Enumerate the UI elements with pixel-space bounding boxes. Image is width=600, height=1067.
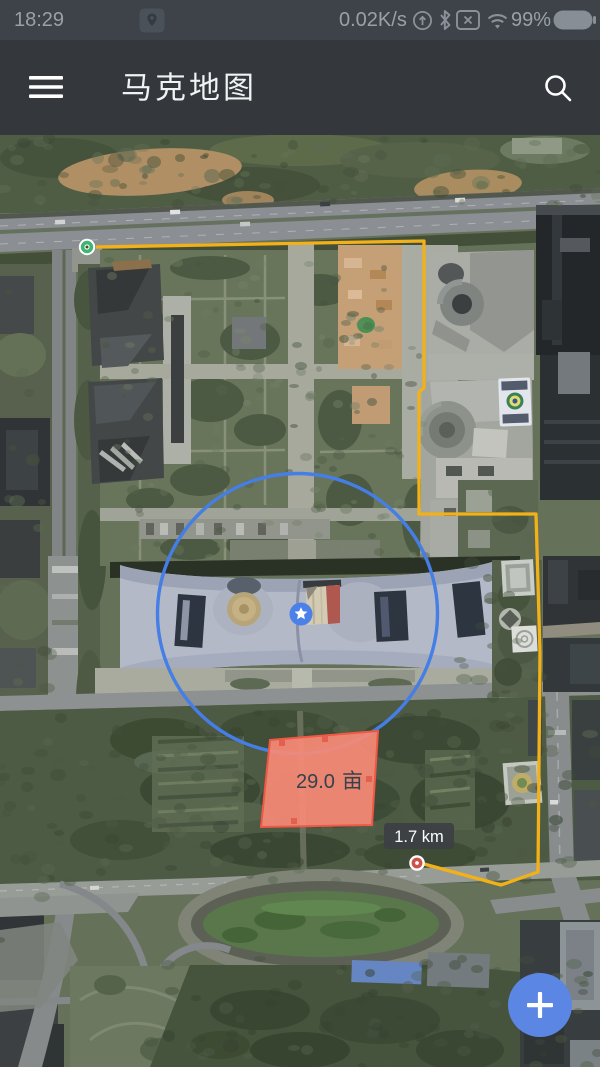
- svg-text:1.7 km: 1.7 km: [394, 828, 444, 846]
- svg-text:29.0: 29.0: [296, 771, 335, 793]
